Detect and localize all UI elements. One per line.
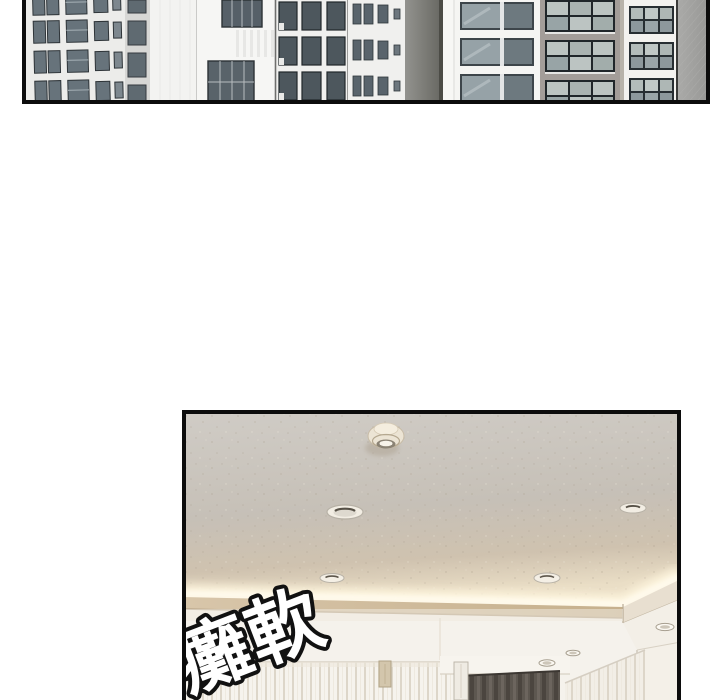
ceiling <box>182 410 681 610</box>
panel-interior: 癱軟 <box>182 410 681 700</box>
recessed-light <box>539 660 555 666</box>
curtain-dark-center <box>458 671 560 700</box>
recessed-light <box>327 505 363 519</box>
recessed-light <box>320 574 344 583</box>
building-white-glass <box>624 0 678 104</box>
building-wide-windows <box>455 0 540 104</box>
recessed-light <box>620 503 646 513</box>
comic-page: 癱軟 <box>0 0 720 700</box>
recessed-light <box>534 573 560 583</box>
building-left-tower <box>24 0 150 104</box>
panel-cityscape <box>22 0 710 104</box>
building-glass-grid <box>540 0 624 104</box>
recessed-light <box>656 623 674 630</box>
wall-switch <box>379 661 391 687</box>
building-blank-wall <box>150 0 197 104</box>
building-grey-slab <box>678 0 708 104</box>
building-small-windows <box>347 0 405 104</box>
recessed-light <box>566 650 580 656</box>
building-facade-b <box>197 0 275 104</box>
curtain-bracket <box>454 662 468 700</box>
building-dark-strip <box>405 0 455 104</box>
building-window-grid <box>275 0 347 104</box>
